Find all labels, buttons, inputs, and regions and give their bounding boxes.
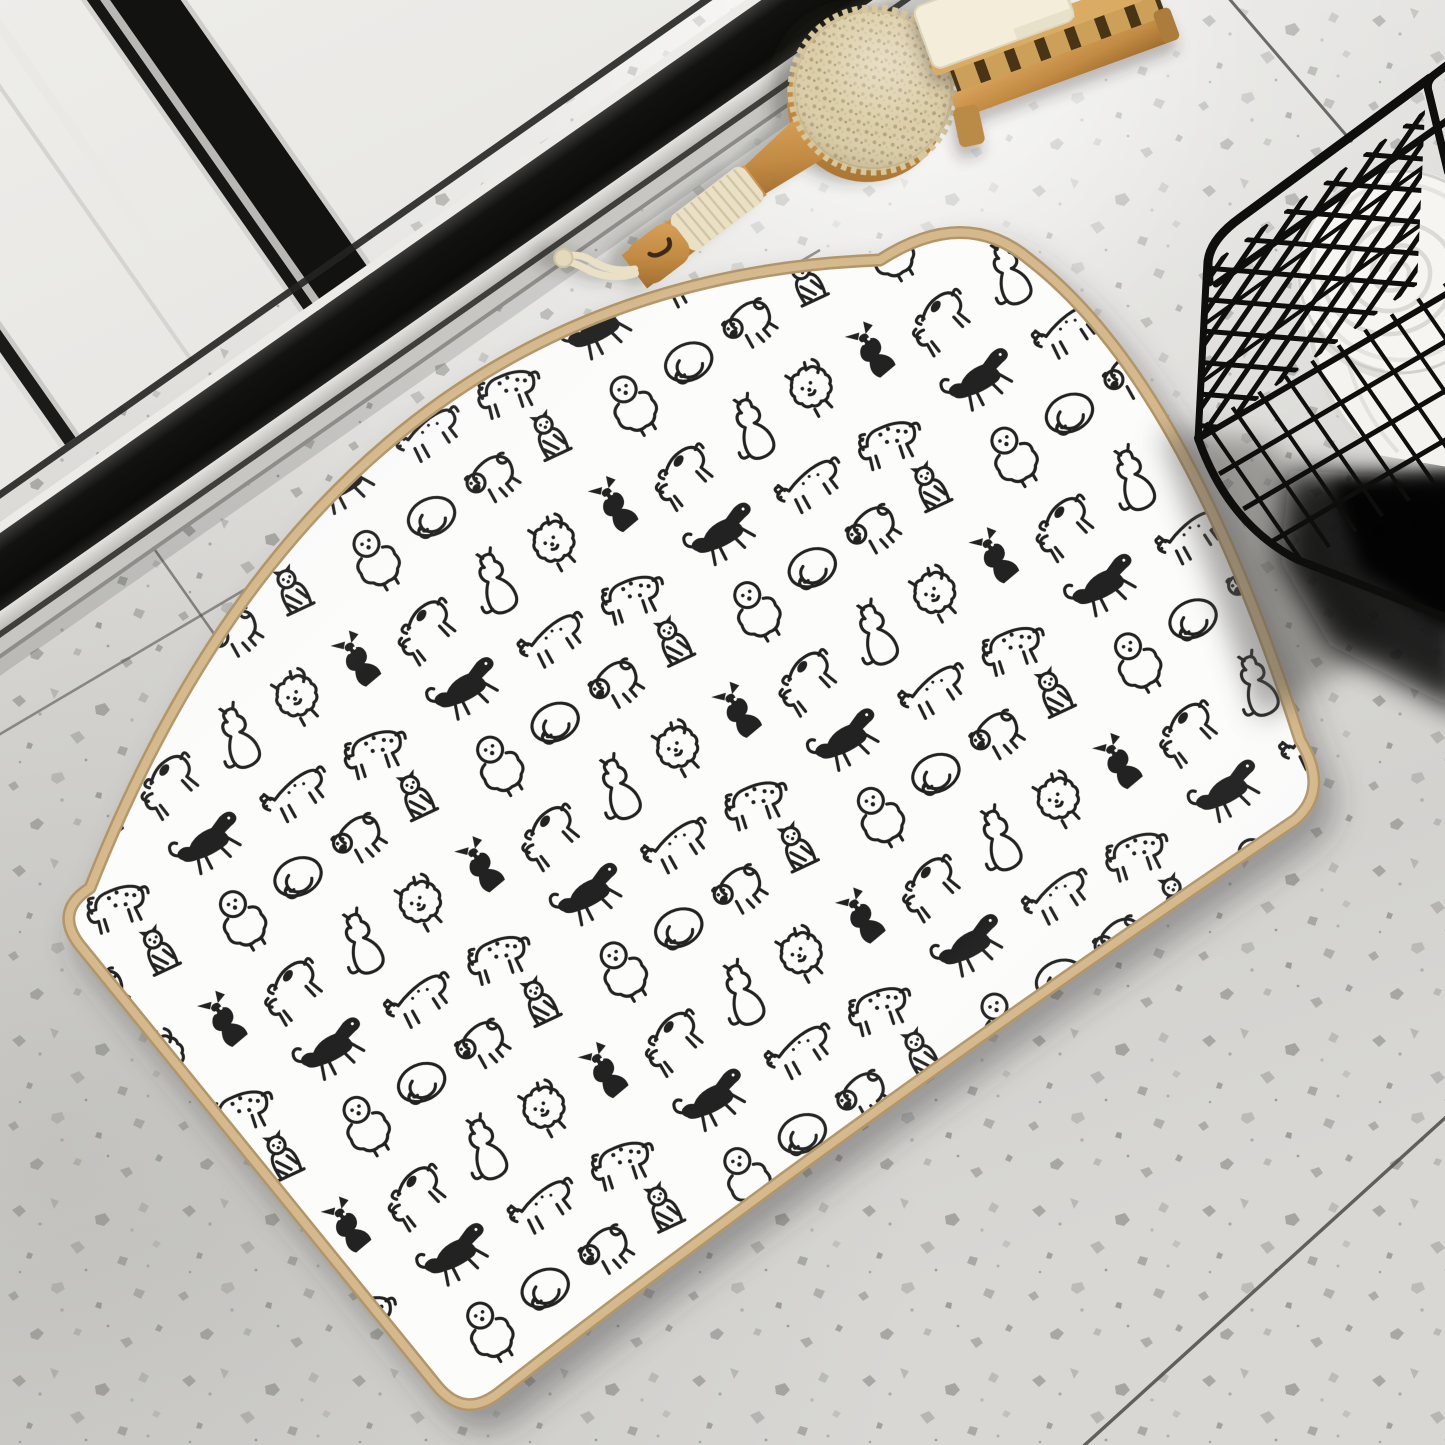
- scene-canvas: [0, 0, 1445, 1445]
- product-photo: [0, 0, 1445, 1445]
